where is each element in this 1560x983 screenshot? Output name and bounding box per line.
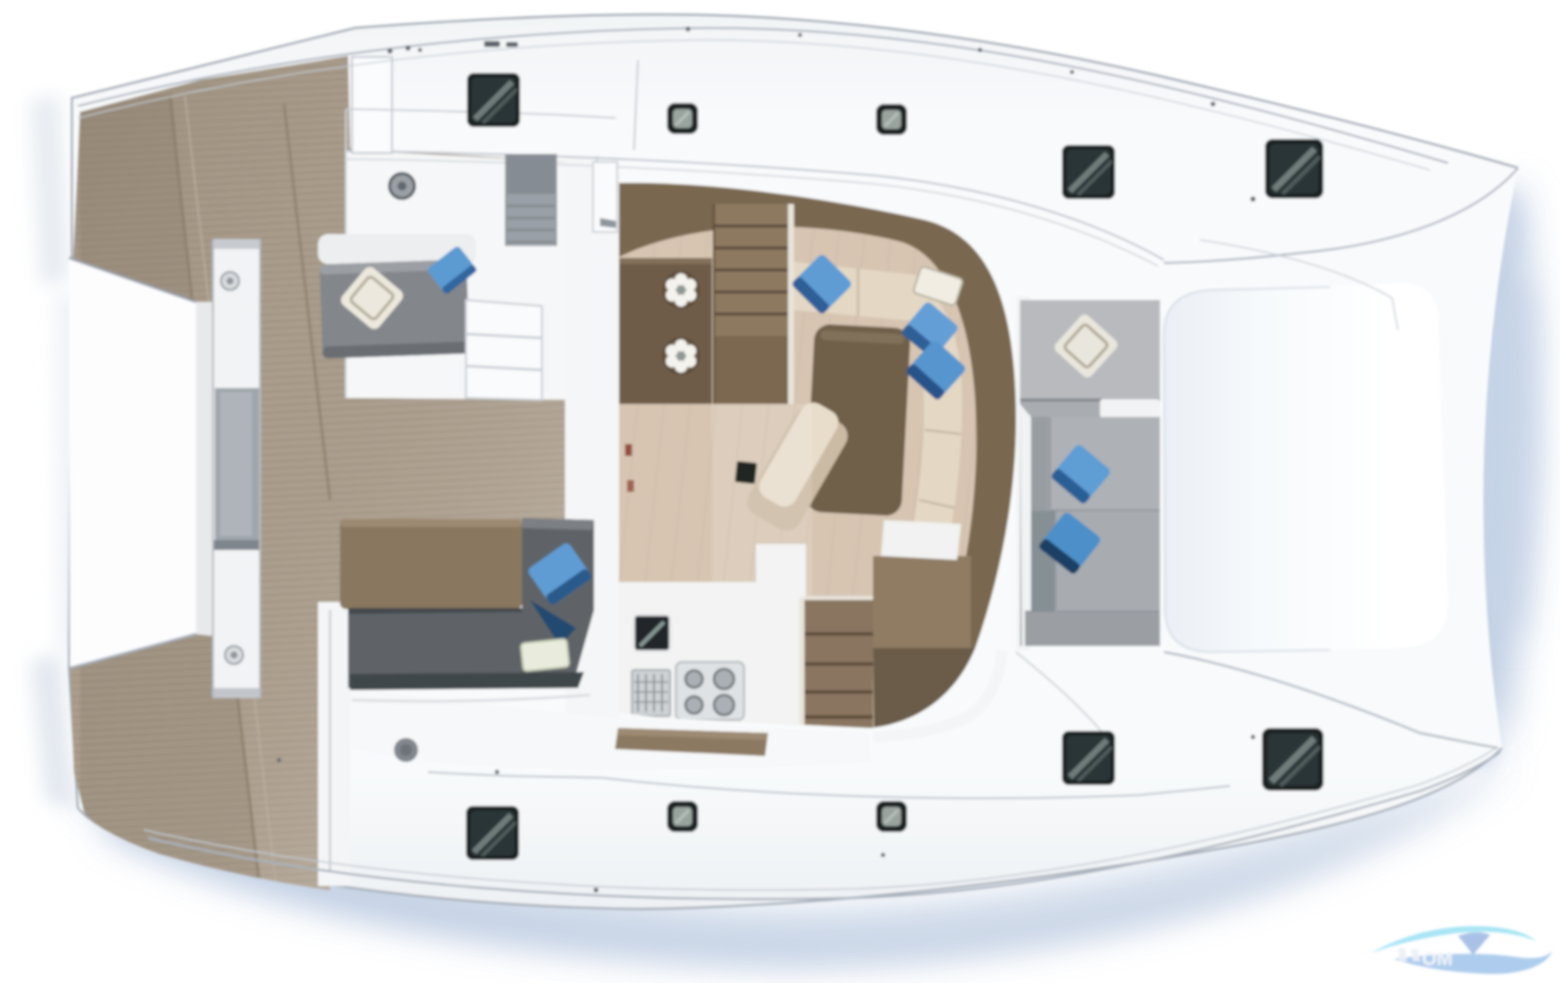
svg-text:OM: OM: [1422, 949, 1453, 970]
